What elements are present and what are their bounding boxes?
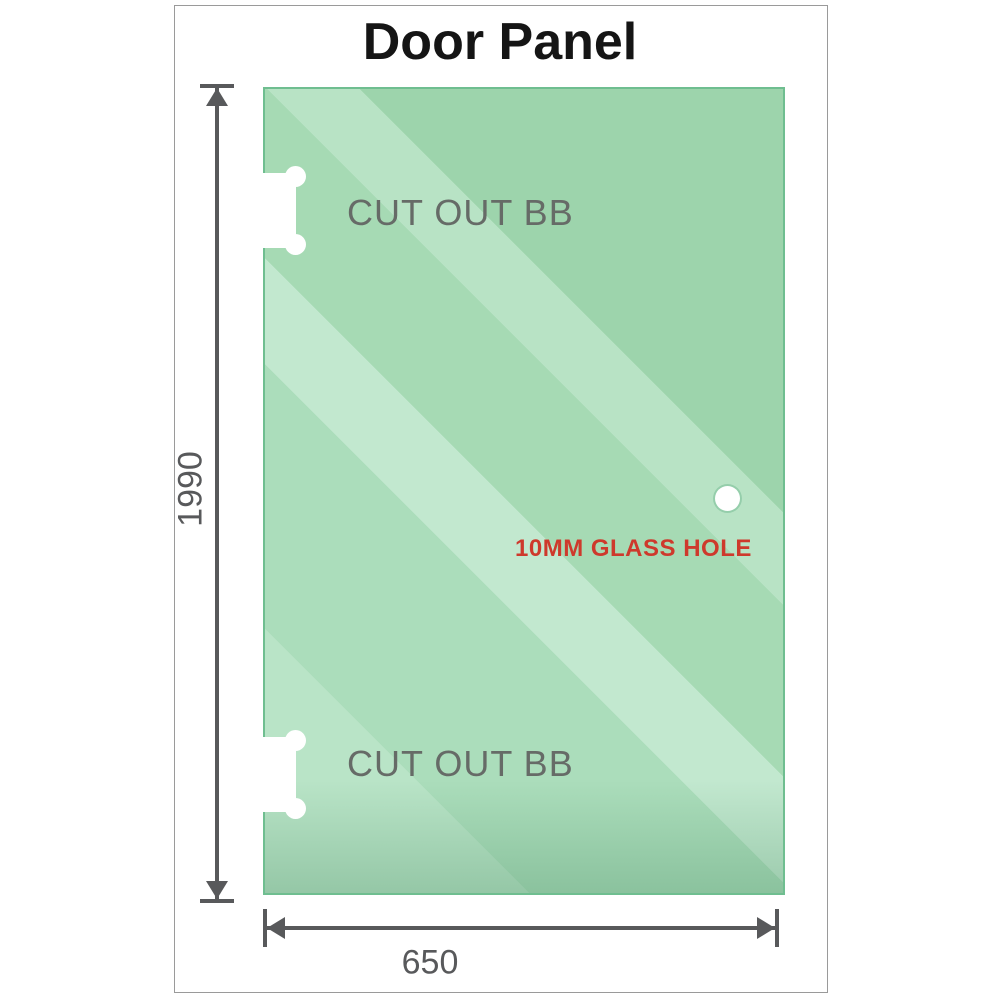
width-dimension-label: 650 bbox=[402, 944, 459, 983]
glass-hole-icon bbox=[715, 486, 740, 511]
height-dimension-cap-bottom bbox=[200, 899, 234, 903]
cutout-bottom-label: CUT OUT BB bbox=[347, 743, 574, 785]
hinge-cutout-bottom bbox=[260, 737, 296, 812]
page-title: Door Panel bbox=[174, 12, 826, 72]
arrow-right-icon bbox=[757, 917, 775, 939]
arrow-up-icon bbox=[206, 88, 228, 106]
height-dimension-line bbox=[215, 86, 219, 901]
cutout-top-label: CUT OUT BB bbox=[347, 192, 574, 234]
glass-hole-label: 10MM GLASS HOLE bbox=[515, 535, 752, 563]
hinge-cutout-top bbox=[260, 173, 296, 248]
width-dimension-line bbox=[265, 926, 777, 930]
arrow-left-icon bbox=[267, 917, 285, 939]
width-dimension-cap-right bbox=[775, 909, 779, 947]
height-dimension-label: 1990 bbox=[172, 451, 211, 527]
glass-panel: CUT OUT BB CUT OUT BB 10MM GLASS HOLE bbox=[263, 87, 785, 895]
arrow-down-icon bbox=[206, 881, 228, 899]
